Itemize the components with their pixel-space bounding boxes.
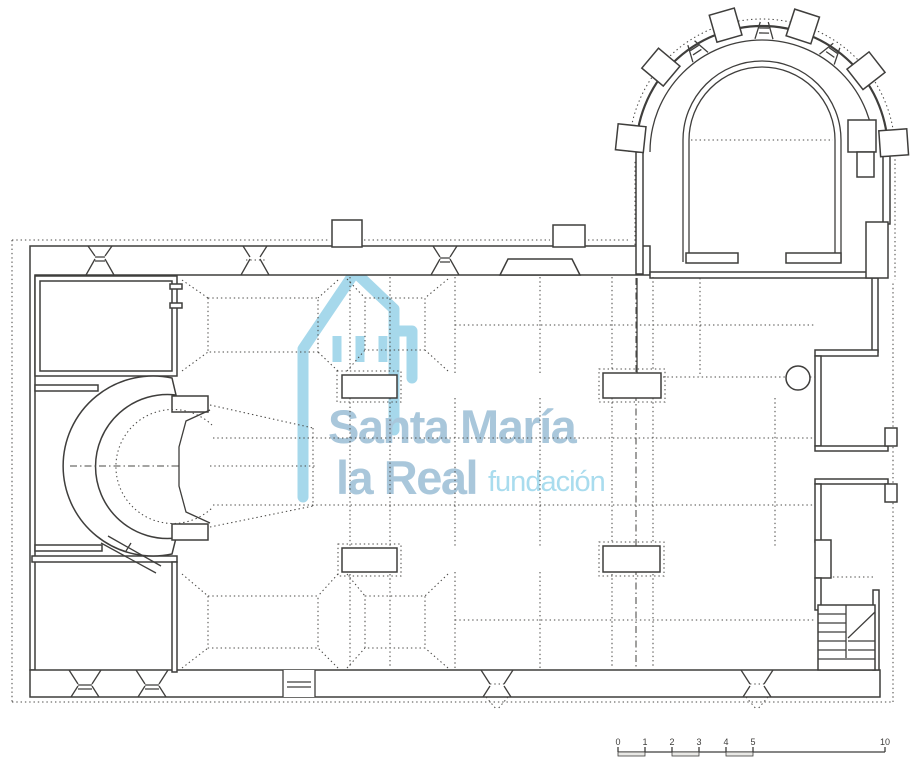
pillar-se xyxy=(603,546,660,572)
outer-boundary-dotted xyxy=(12,19,895,702)
southwest-room xyxy=(32,556,177,672)
south-door-gap xyxy=(283,670,315,697)
northwest-room xyxy=(35,276,182,376)
north-buttress-2 xyxy=(553,225,585,247)
scale-label-3: 3 xyxy=(696,737,701,747)
apse xyxy=(63,376,212,573)
scale-label-4: 4 xyxy=(723,737,728,747)
scale-label-1: 1 xyxy=(642,737,647,747)
tower-door-respond-west xyxy=(686,253,738,263)
scale-label-2: 2 xyxy=(669,737,674,747)
tower-window-splays xyxy=(684,22,844,65)
scale-label-10: 10 xyxy=(880,737,890,747)
chancel-arch-pier-north xyxy=(172,396,208,412)
chancel-arch-pier-south xyxy=(172,524,208,540)
tower-door-respond-east xyxy=(786,253,841,263)
vault-guidelines xyxy=(182,277,873,670)
scale-bar: 0 1 2 3 4 5 10 xyxy=(615,737,890,756)
staircase xyxy=(818,605,875,670)
portal-jamb-south xyxy=(815,479,888,484)
round-tower xyxy=(615,8,908,278)
north-door-splay xyxy=(500,259,580,275)
tower-pilaster xyxy=(857,152,874,177)
portal-jamb-north xyxy=(815,446,888,451)
scale-label-5: 5 xyxy=(750,737,755,747)
pillar-nw xyxy=(342,375,397,398)
pillar-ne xyxy=(603,373,661,398)
floor-plan-drawing: 0 1 2 3 4 5 10 xyxy=(0,0,910,768)
scale-label-0: 0 xyxy=(615,737,620,747)
nave-pillars xyxy=(337,366,810,576)
north-buttress xyxy=(332,220,362,247)
scanned-plan-page: Santa María la Real fundación xyxy=(0,0,910,768)
round-column xyxy=(786,366,810,390)
pillar-sw xyxy=(342,548,397,572)
